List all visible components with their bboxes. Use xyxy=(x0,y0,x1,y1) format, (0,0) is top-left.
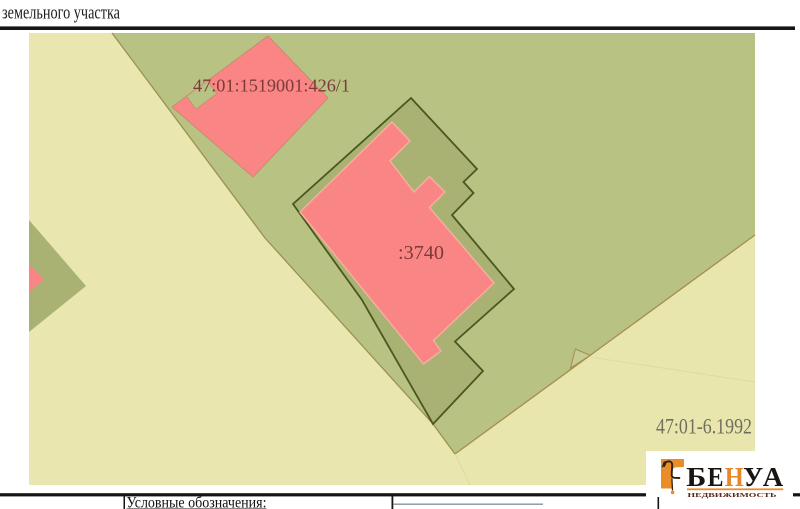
svg-text:НЕДВИЖИМОСТЬ: НЕДВИЖИМОСТЬ xyxy=(688,492,778,499)
svg-text::3740: :3740 xyxy=(398,242,444,264)
svg-text:47:01:1519001:426/1: 47:01:1519001:426/1 xyxy=(193,76,350,96)
svg-text:Е: Е xyxy=(708,461,724,492)
svg-text:земельного участка: земельного участка xyxy=(2,2,120,23)
svg-text:У: У xyxy=(743,461,763,492)
svg-text:Н: Н xyxy=(725,461,744,492)
svg-text:47:01-6.1992: 47:01-6.1992 xyxy=(656,414,752,439)
svg-text:А: А xyxy=(763,461,784,492)
svg-text:Условные обозначения:: Условные обозначения: xyxy=(127,495,267,509)
svg-text:Б: Б xyxy=(686,461,706,492)
